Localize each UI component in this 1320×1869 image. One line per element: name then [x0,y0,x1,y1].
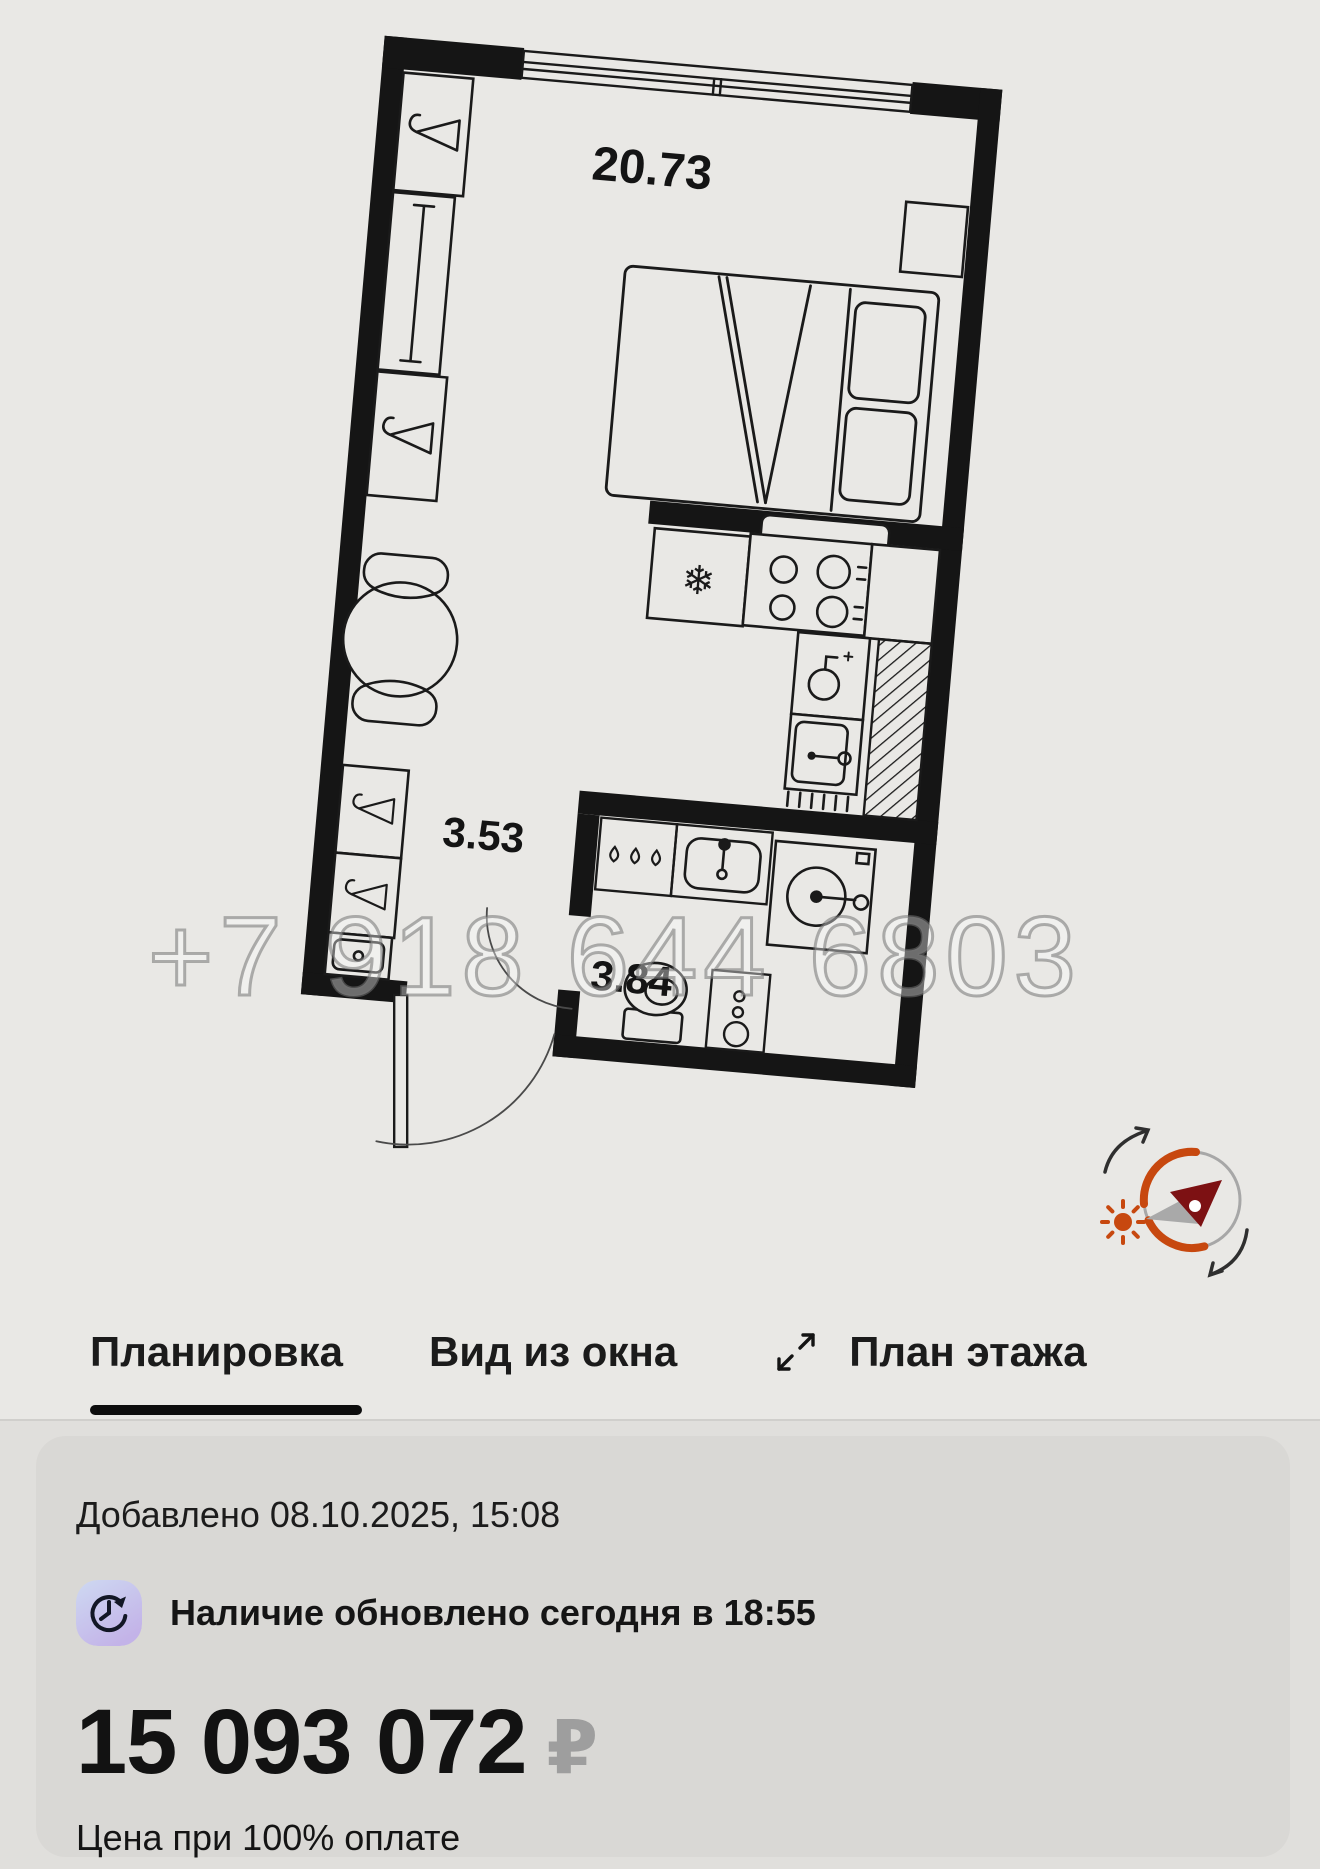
price-row: 15 093 072 ₽ [76,1690,1250,1795]
pillow [839,407,917,505]
hall-cabinet [325,932,392,979]
tab-planirovka[interactable]: Планировка [90,1328,343,1376]
bed [606,266,940,523]
bathroom-sink [684,836,762,893]
tab-bar: Планировка Вид из окна План этажа [0,1285,1320,1419]
bottom-sheet: Добавлено 08.10.2025, 15:08 Наличие обно [0,1421,1320,1869]
info-card: Добавлено 08.10.2025, 15:08 Наличие обно [36,1436,1290,1857]
snowflake-icon: ❄ [680,557,717,606]
kitchen-tap-cabinet [791,632,870,720]
compass-icon [1102,1128,1247,1275]
nightstand [900,202,968,277]
stove [743,534,873,636]
area-label-hall: 3.53 [441,808,527,862]
entrance-door [376,993,557,1160]
bath-cabinet [706,970,771,1053]
floorplan-viewer[interactable]: ❄ [0,0,1320,1285]
expand-icon [773,1329,819,1375]
closet [335,765,408,858]
shower [595,818,677,896]
water-drops-icon [631,848,640,863]
floor-plan: ❄ [0,0,1320,1285]
area-label-bath: 3.84 [589,951,675,1005]
washing-machine [767,841,876,953]
availability-row: Наличие обновлено сегодня в 18:55 [76,1580,1250,1646]
price-value: 15 093 072 [76,1690,526,1795]
closet [393,73,473,197]
kitchen-counter [864,544,940,644]
water-drops-icon [652,850,661,865]
sun-icon [1102,1201,1144,1243]
availability-text: Наличие обновлено сегодня в 18:55 [170,1592,816,1634]
closet [328,853,401,938]
ruble-sign: ₽ [546,1705,598,1791]
window [522,51,913,112]
pillow [848,302,926,404]
added-date-text: Добавлено 08.10.2025, 15:08 [76,1494,1250,1536]
tab-vid-iz-okna[interactable]: Вид из окна [429,1328,677,1376]
fullscreen-button[interactable] [773,1329,819,1375]
water-drops-icon [610,847,619,862]
clock-refresh-icon [76,1580,142,1646]
tab-plan-etazha[interactable]: План этажа [849,1328,1086,1376]
price-note: Цена при 100% оплате [76,1817,1250,1859]
area-label-main: 20.73 [590,137,714,200]
active-tab-underline [90,1405,362,1415]
closet [367,371,448,501]
